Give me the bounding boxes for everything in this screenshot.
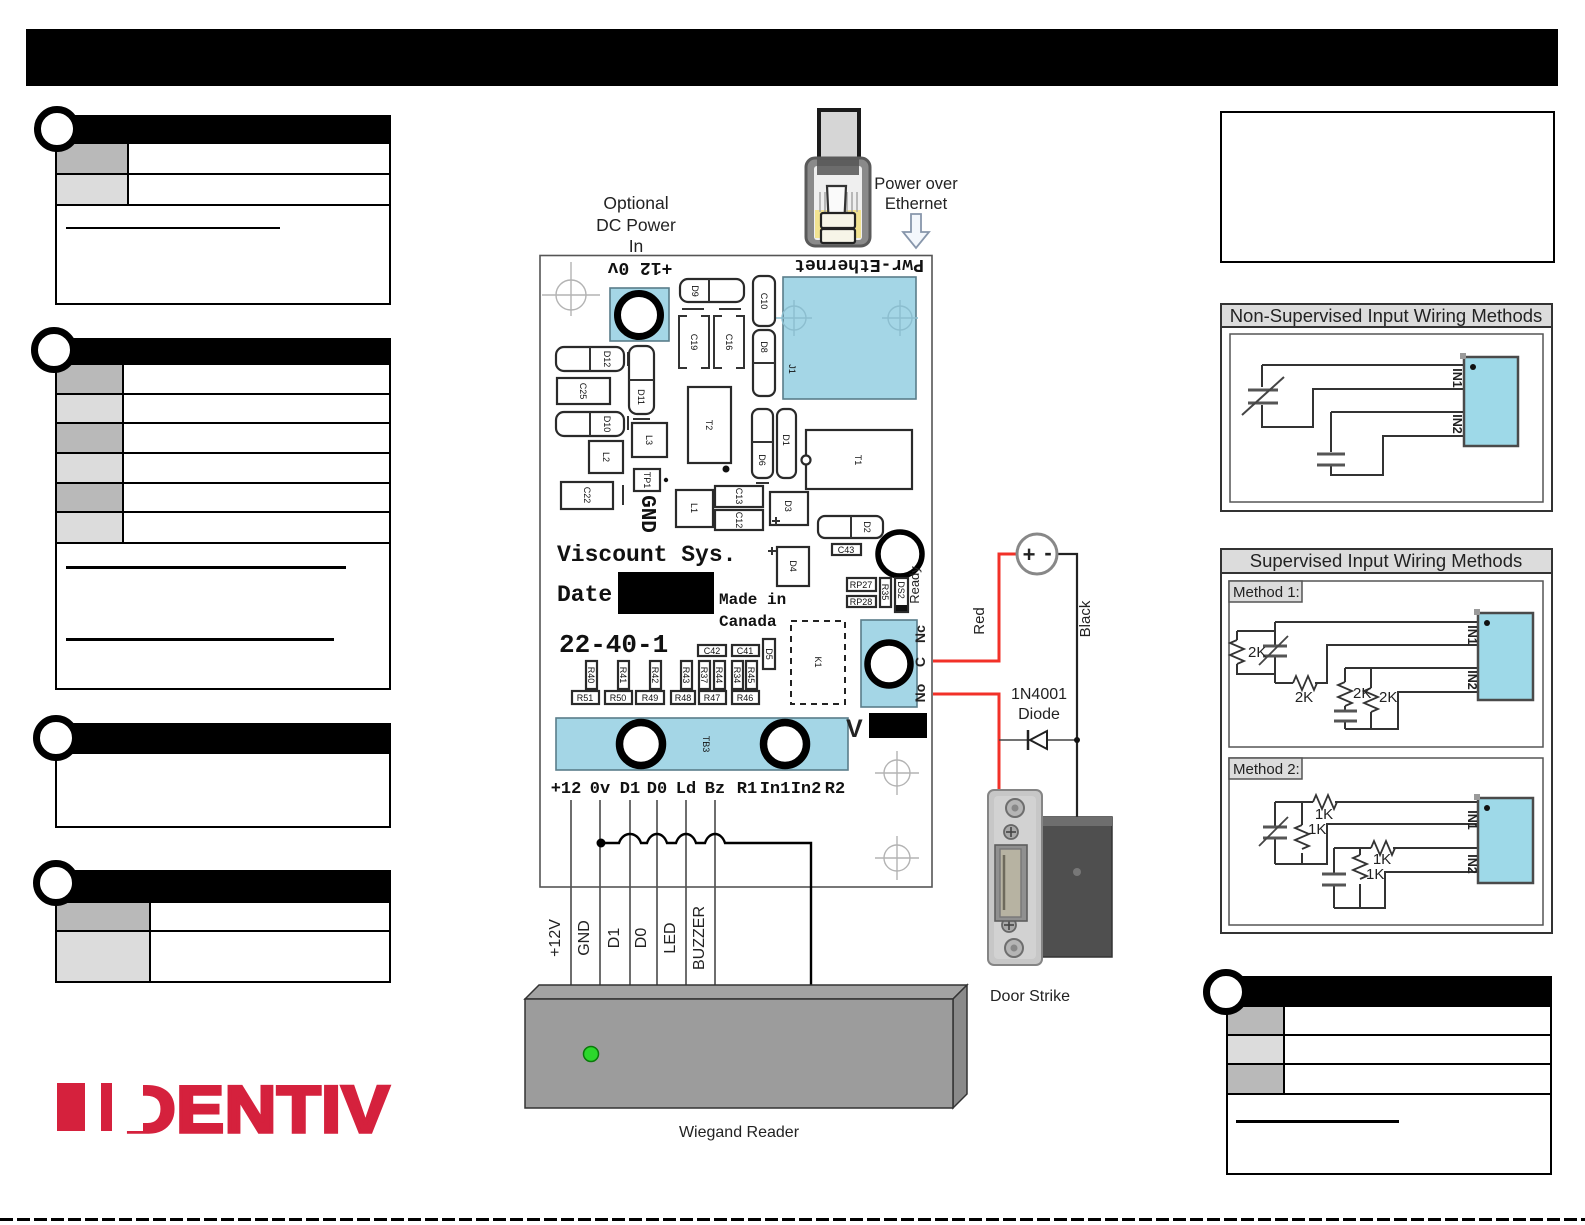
svg-text:Black: Black: [1077, 600, 1094, 637]
svg-text:J1: J1: [787, 364, 797, 374]
svg-text:-: -: [1044, 540, 1051, 565]
svg-text:C: C: [912, 657, 928, 667]
svg-text:C19: C19: [689, 334, 699, 351]
svg-text:R34: R34: [732, 667, 742, 684]
svg-text:Nc: Nc: [912, 625, 928, 643]
svg-text:TP1: TP1: [642, 472, 652, 489]
svg-text:1K: 1K: [1308, 821, 1326, 838]
svg-text:D2: D2: [862, 521, 872, 533]
svg-text:R45: R45: [746, 667, 756, 684]
svg-text:R47: R47: [704, 693, 721, 703]
svg-text:C25: C25: [578, 383, 588, 400]
svg-text:R40: R40: [586, 667, 596, 684]
svg-text:+12: +12: [551, 780, 582, 799]
svg-text:IN2: IN2: [1465, 670, 1479, 690]
svg-text:Date: Date: [557, 582, 612, 608]
svg-text:BUZZER: BUZZER: [691, 906, 708, 970]
svg-text:L2: L2: [601, 452, 611, 462]
svg-text:Diode: Diode: [1018, 706, 1060, 723]
svg-text:T2: T2: [704, 420, 714, 431]
svg-text:T1: T1: [853, 455, 863, 466]
svg-text:C42: C42: [704, 646, 721, 656]
svg-text:TB3: TB3: [701, 736, 711, 753]
svg-text:R50: R50: [610, 693, 627, 703]
svg-text:GND: GND: [576, 920, 593, 956]
svg-text:Pwr-Ethernet: Pwr-Ethernet: [794, 254, 924, 274]
svg-text:Ld: Ld: [676, 780, 696, 799]
svg-text:IN1: IN1: [1450, 368, 1464, 388]
svg-text:D1: D1: [620, 780, 640, 799]
svg-text:2K: 2K: [1295, 689, 1313, 706]
svg-text:D12: D12: [602, 351, 612, 368]
svg-text:D1: D1: [606, 928, 623, 949]
svg-text:2K: 2K: [1248, 644, 1266, 661]
svg-text:In2: In2: [791, 780, 822, 799]
svg-text:R42: R42: [650, 667, 660, 684]
svg-text:D0: D0: [633, 928, 650, 949]
svg-text:Bz: Bz: [705, 780, 725, 799]
svg-text:C41: C41: [737, 646, 754, 656]
svg-text:GND: GND: [635, 495, 658, 533]
svg-text:Method 2:: Method 2:: [1233, 761, 1300, 778]
svg-text:L3: L3: [644, 435, 654, 445]
svg-text:D4: D4: [788, 560, 798, 572]
svg-text:+12V: +12V: [547, 919, 564, 957]
svg-text:C22: C22: [582, 487, 592, 504]
svg-text:D3: D3: [783, 500, 793, 512]
svg-text:L1: L1: [689, 503, 699, 513]
svg-text:R41: R41: [618, 667, 628, 684]
svg-text:+: +: [1023, 542, 1036, 567]
svg-text:DS2: DS2: [896, 581, 906, 599]
svg-text:D1: D1: [781, 434, 791, 446]
svg-text:2K: 2K: [1353, 685, 1371, 702]
svg-text:Viscount Sys.: Viscount Sys.: [557, 542, 736, 568]
svg-text:RP28: RP28: [850, 597, 873, 607]
svg-text:Optional: Optional: [603, 193, 668, 213]
svg-text:No: No: [912, 684, 928, 703]
svg-text:Non-Supervised Input Wiring Me: Non-Supervised Input Wiring Methods: [1230, 305, 1543, 326]
svg-text:C43: C43: [838, 545, 855, 555]
svg-text:DC Power: DC Power: [596, 215, 676, 235]
svg-text:D9: D9: [690, 285, 700, 297]
svg-text:K1: K1: [813, 656, 823, 667]
svg-text:D8: D8: [759, 341, 769, 353]
svg-text:Wiegand Reader: Wiegand Reader: [679, 1124, 800, 1141]
svg-text:0v: 0v: [590, 780, 610, 799]
svg-text:IN1: IN1: [1465, 625, 1479, 645]
svg-text:C13: C13: [734, 488, 744, 505]
svg-text:22-40-1: 22-40-1: [559, 630, 668, 660]
svg-text:R44: R44: [714, 667, 724, 684]
svg-text:In1: In1: [760, 780, 791, 799]
svg-text:D5: D5: [764, 648, 774, 660]
svg-text:Method 1:: Method 1:: [1233, 584, 1300, 601]
svg-text:C16: C16: [724, 334, 734, 351]
svg-text:R37: R37: [699, 667, 709, 684]
svg-text:D11: D11: [636, 389, 646, 405]
svg-text:1N4001: 1N4001: [1011, 686, 1067, 703]
svg-text:C10: C10: [759, 293, 769, 310]
svg-text:D0: D0: [647, 780, 667, 799]
svg-text:IN2: IN2: [1465, 854, 1479, 874]
svg-text:LED: LED: [662, 922, 679, 953]
svg-text:R35: R35: [880, 584, 890, 601]
svg-text:V: V: [846, 715, 863, 743]
svg-text:D10: D10: [602, 416, 612, 433]
svg-text:Canada: Canada: [719, 613, 777, 631]
svg-text:Ethernet: Ethernet: [885, 195, 948, 213]
svg-text:1K: 1K: [1366, 866, 1384, 883]
svg-text:R1: R1: [737, 780, 757, 799]
svg-text:R51: R51: [577, 693, 594, 703]
svg-text:Made in: Made in: [719, 591, 786, 609]
svg-text:Ready: Ready: [907, 566, 922, 604]
svg-text:IN2: IN2: [1450, 414, 1464, 434]
svg-text:+12 0v: +12 0v: [607, 257, 672, 277]
svg-text:In: In: [629, 236, 644, 256]
svg-text:R43: R43: [681, 667, 691, 684]
svg-text:RP27: RP27: [850, 580, 873, 590]
svg-text:R48: R48: [675, 693, 692, 703]
svg-text:R2: R2: [825, 780, 845, 799]
svg-text:Power over: Power over: [874, 175, 958, 193]
svg-text:Red: Red: [971, 607, 988, 635]
svg-text:IN1: IN1: [1465, 810, 1479, 830]
svg-text:Door Strike: Door Strike: [990, 988, 1070, 1005]
svg-text:2K: 2K: [1379, 689, 1397, 706]
svg-text:D6: D6: [757, 454, 767, 466]
svg-text:R46: R46: [737, 693, 754, 703]
svg-text:C12: C12: [734, 512, 744, 529]
svg-text:R49: R49: [642, 693, 659, 703]
svg-text:Supervised Input Wiring Method: Supervised Input Wiring Methods: [1250, 550, 1523, 571]
